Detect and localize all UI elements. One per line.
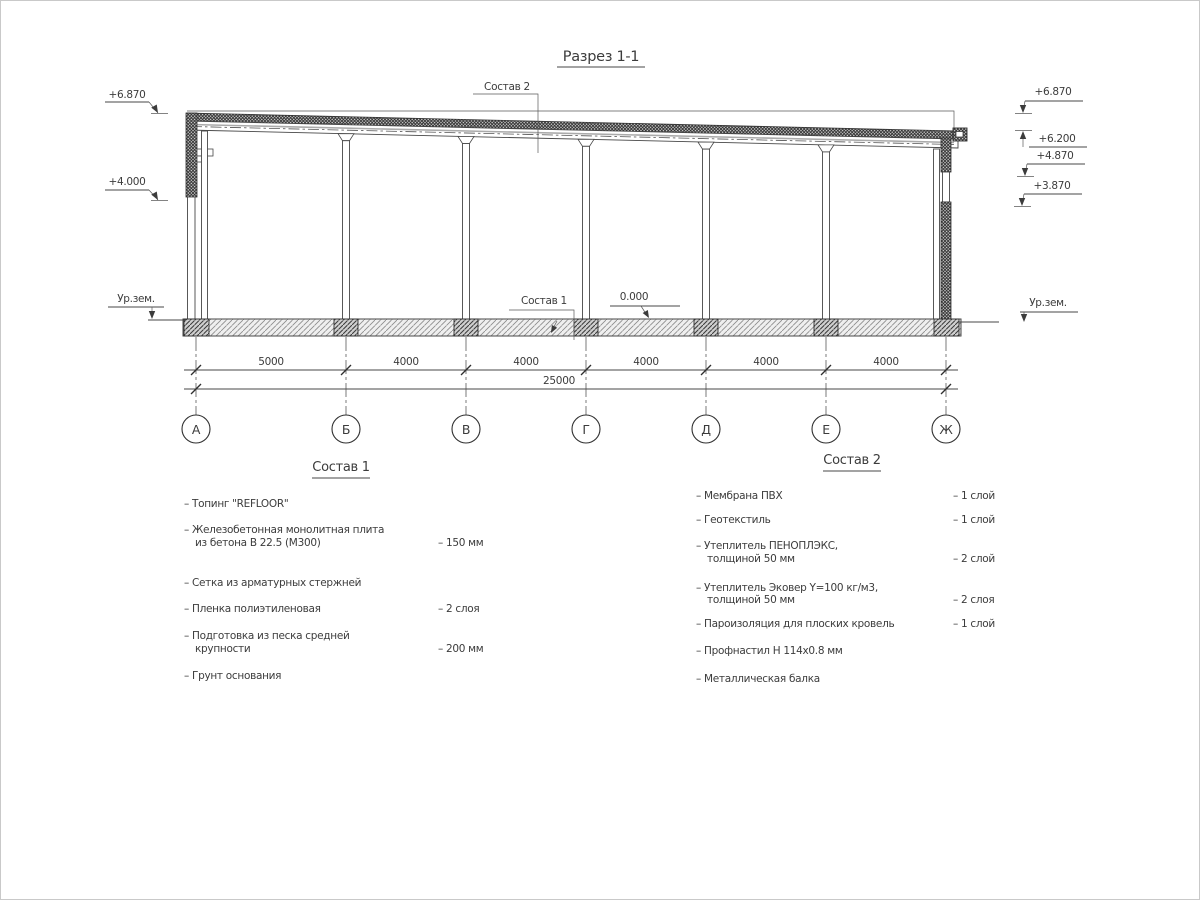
comp2-heading: Состав 2 <box>823 453 880 468</box>
right-wall-panel-lower <box>941 202 951 319</box>
right-wall <box>934 138 952 319</box>
elevation-mark-right-3870: +3.870 <box>1014 180 1082 207</box>
elevation-label: +4.870 <box>1036 150 1073 162</box>
comp2-item: – Геотекстиль <box>696 514 771 526</box>
axis-label-b: Б <box>342 422 350 437</box>
ground-label: Ур.зем. <box>117 293 155 305</box>
comp2-item-line2: толщиной 50 мм <box>707 594 795 606</box>
axis-label-a: А <box>192 422 201 437</box>
elevation-label: +3.870 <box>1033 180 1070 192</box>
column-axis-b <box>338 134 354 319</box>
ground-label: Ур.зем. <box>1029 297 1067 309</box>
left-wall-lower <box>188 197 196 319</box>
dim-seg-2: 4000 <box>393 356 419 368</box>
column-axis-e <box>818 145 834 319</box>
slab-band <box>183 319 961 336</box>
drawing-sheet: Разрез 1-1 <box>0 0 1200 900</box>
dimension-line-segments: 5000 4000 4000 4000 4000 4000 <box>184 356 958 375</box>
roof-edge-cap-inner <box>956 132 963 138</box>
comp1-item-line2: из бетона В 22.5 (М300) <box>195 537 321 549</box>
floor-slab <box>148 319 999 336</box>
comp1-item: – Грунт основания <box>184 670 281 682</box>
elevation-mark-left-4000: +4.000 <box>105 176 168 202</box>
composition-list-2: Состав 2 – Мембрана ПВХ – 1 слой – Геоте… <box>696 453 995 685</box>
comp1-heading: Состав 1 <box>312 460 369 475</box>
elevation-mark-right-4870: +4.870 <box>1017 150 1085 177</box>
ground-level-mark-right: Ур.зем. <box>1020 297 1078 322</box>
column-axis-zh <box>934 149 940 319</box>
left-wall <box>186 113 213 319</box>
dim-seg-1: 5000 <box>258 356 284 368</box>
comp2-item-value: – 1 слой <box>953 514 995 526</box>
right-wall-panel-upper <box>941 138 951 172</box>
elevation-mark-left-6870: +6.870 <box>105 89 168 115</box>
dim-seg-6: 4000 <box>873 356 899 368</box>
comp2-item-value: – 1 слой <box>953 618 995 630</box>
callout-sostav2-label: Состав 2 <box>484 81 530 93</box>
right-wall-opening-band <box>943 172 950 202</box>
comp2-item: – Мембрана ПВХ <box>696 490 782 502</box>
axis-bubbles: А Б В Г Д Е Ж <box>182 415 960 443</box>
callout-zero-level: 0.000 <box>610 291 680 320</box>
axis-label-v: В <box>462 422 470 437</box>
elevation-label: +6.870 <box>108 89 145 101</box>
comp2-item: – Утеплитель ПЕНОПЛЭКС, <box>696 540 838 552</box>
comp1-item-value: – 2 слоя <box>438 603 479 615</box>
comp2-item: – Профнастил Н 114х0.8 мм <box>696 645 842 657</box>
comp2-item-value: – 2 слоя <box>953 594 994 606</box>
column-axis-d <box>698 142 714 319</box>
footing-b <box>334 319 358 336</box>
dim-seg-4: 4000 <box>633 356 659 368</box>
dimension-line-total: 25000 <box>184 375 958 394</box>
comp2-item: – Металлическая балка <box>696 673 820 685</box>
left-wall-panel-upper <box>186 113 197 197</box>
callout-sostav1-label: Состав 1 <box>521 295 567 307</box>
axis-label-zh: Ж <box>939 422 953 437</box>
footing-g <box>574 319 598 336</box>
comp1-item: – Пленка полиэтиленовая <box>184 603 321 615</box>
column-axis-a <box>202 131 208 319</box>
footing-a <box>184 319 209 336</box>
comp1-item: – Сетка из арматурных стержней <box>184 577 361 589</box>
ground-level-mark-left: Ур.зем. <box>108 293 164 319</box>
elevation-label: +6.200 <box>1038 133 1075 145</box>
elevation-label: +4.000 <box>108 176 145 188</box>
zero-level-label: 0.000 <box>620 291 649 303</box>
comp1-item-line2: крупности <box>195 643 250 655</box>
comp1-item: – Подготовка из песка средней <box>184 630 350 642</box>
dim-seg-5: 4000 <box>753 356 779 368</box>
axis-label-d: Д <box>701 422 711 437</box>
composition-list-1: Состав 1 – Топинг "REFLOOR" – Железобето… <box>184 460 483 682</box>
drawing-title: Разрез 1-1 <box>557 49 645 67</box>
column-axis-g <box>578 139 594 319</box>
comp2-item: – Утеплитель Эковер Y=100 кг/м3, <box>696 582 878 594</box>
footing-v <box>454 319 478 336</box>
comp1-item: – Железобетонная монолитная плита <box>184 524 384 536</box>
comp1-item: – Топинг "REFLOOR" <box>184 498 288 510</box>
callout-sostav2: Состав 2 <box>473 81 538 153</box>
axis-label-e: Е <box>822 422 830 437</box>
footing-d <box>694 319 718 336</box>
dim-total: 25000 <box>543 375 575 387</box>
elevation-mark-right-6870: +6.870 <box>1015 86 1083 114</box>
footing-e <box>814 319 838 336</box>
roof-assembly <box>187 111 967 148</box>
axis-label-g: Г <box>582 422 589 437</box>
title-text: Разрез 1-1 <box>563 49 639 65</box>
comp1-item-value: – 150 мм <box>438 537 483 549</box>
comp2-item: – Пароизоляция для плоских кровель <box>696 618 894 630</box>
comp1-item-value: – 200 мм <box>438 643 483 655</box>
elevation-mark-right-6200: +6.200 <box>1015 131 1087 148</box>
dim-seg-3: 4000 <box>513 356 539 368</box>
column-axis-v <box>458 137 474 320</box>
section-drawing: Разрез 1-1 <box>1 1 1200 900</box>
elevation-label: +6.870 <box>1034 86 1071 98</box>
comp2-item-line2: толщиной 50 мм <box>707 553 795 565</box>
interior-columns <box>338 134 834 319</box>
comp2-item-value: – 2 слой <box>953 553 995 565</box>
comp2-item-value: – 1 слой <box>953 490 995 502</box>
footing-zh <box>934 319 959 336</box>
